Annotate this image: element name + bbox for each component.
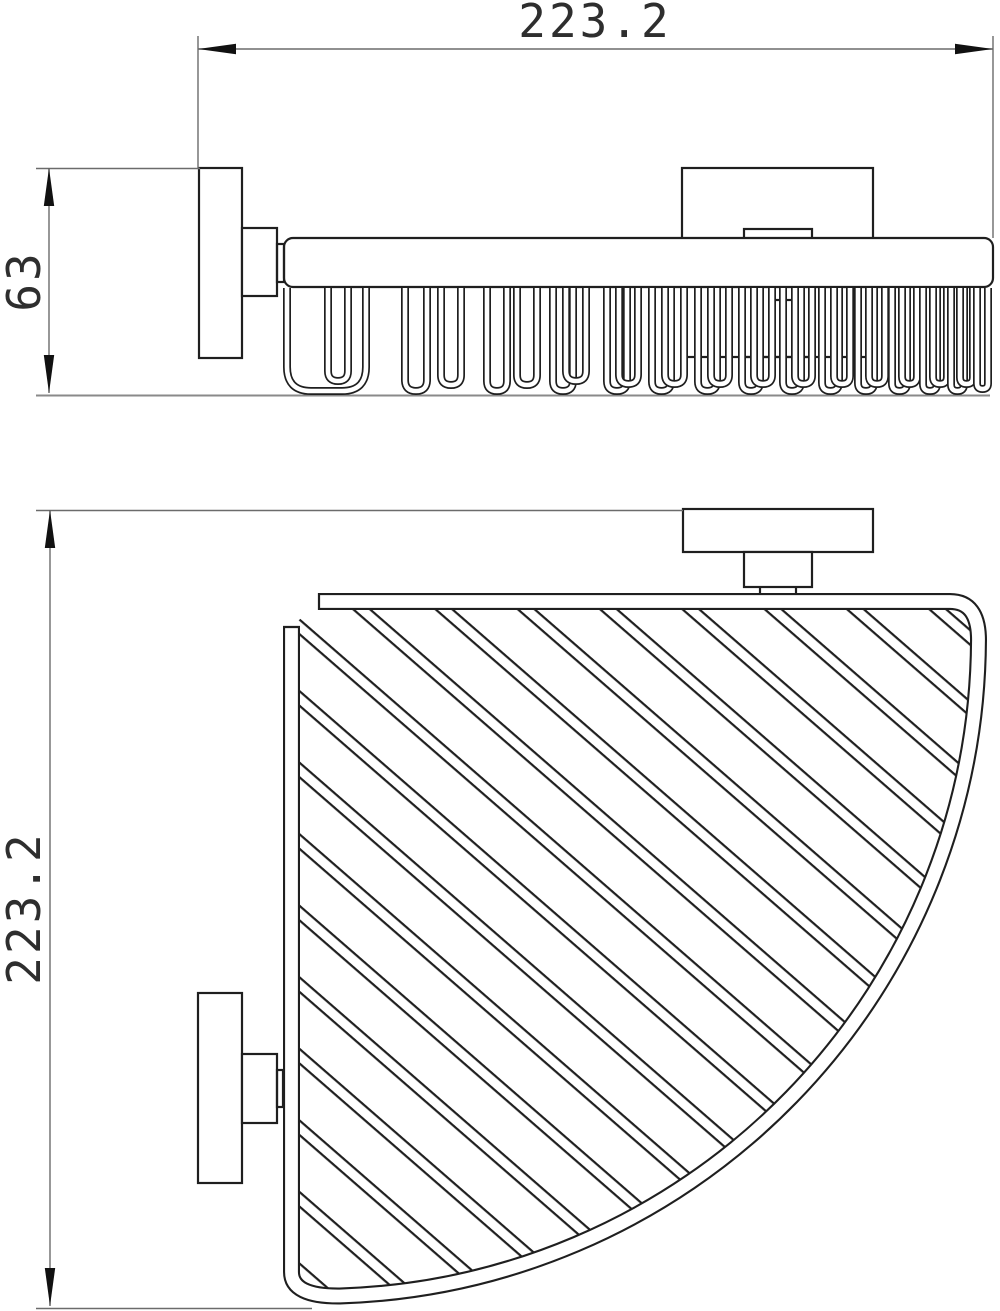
mount-post — [242, 228, 277, 296]
technical-drawing: 223.2 63 223.2 — [0, 0, 1000, 1311]
plan-left-mount-post — [242, 1054, 277, 1123]
technical-drawing-svg: 223.2 63 223.2 — [0, 0, 1000, 1311]
dimension-arrow-right — [955, 44, 993, 54]
wire-hatch — [292, 602, 979, 1297]
dimension-arrow-up — [45, 510, 55, 548]
plan-left-mount-step — [277, 1070, 283, 1107]
wall-plate — [199, 168, 242, 358]
wire-loop — [487, 288, 507, 391]
dimension-arrow-down — [44, 355, 54, 393]
plan-left-mount-plate — [198, 993, 242, 1183]
top-mount-plate — [683, 509, 873, 552]
dimension-width-label: 223.2 — [518, 0, 671, 48]
wire-loop — [328, 288, 348, 381]
top-mount-post — [744, 552, 812, 587]
basket-wires — [287, 288, 988, 391]
wire-loop-inner — [977, 288, 988, 389]
wire-loop — [405, 288, 427, 391]
wire-loop — [441, 288, 461, 385]
dimension-height: 63 — [0, 168, 200, 393]
dimension-depth-label: 223.2 — [0, 831, 51, 984]
plan-view — [198, 509, 979, 1296]
wire-loop — [517, 288, 537, 385]
dimension-arrow-left — [198, 44, 236, 54]
top-mount — [683, 509, 873, 594]
basket-rim — [284, 238, 993, 287]
dimension-arrow-up — [44, 168, 54, 206]
dimension-arrow-down — [45, 1268, 55, 1306]
front-view — [36, 168, 993, 396]
dimension-height-label: 63 — [0, 250, 51, 311]
mount-step — [277, 244, 284, 282]
plan-left-mount — [198, 993, 283, 1183]
left-wall-mount — [199, 168, 284, 358]
